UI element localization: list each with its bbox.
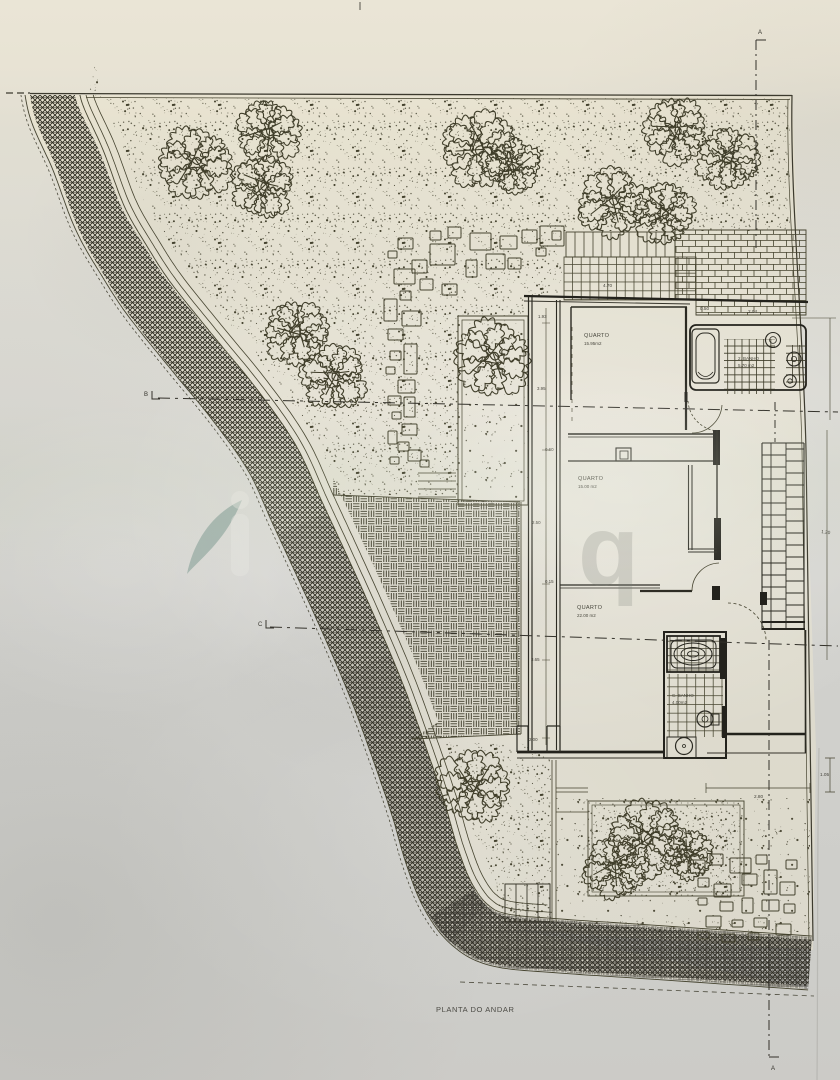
svg-text:2.04: 2.04 — [748, 309, 758, 314]
svg-text:2.00: 2.00 — [529, 737, 538, 742]
svg-text:0.50: 0.50 — [700, 306, 710, 311]
svg-text:1.93: 1.93 — [538, 314, 547, 319]
svg-text:PLANTA DO ANDAR: PLANTA DO ANDAR — [436, 1005, 514, 1014]
svg-text:A: A — [758, 30, 762, 36]
svg-text:QUARTO: QUARTO — [584, 333, 610, 339]
svg-text:2. BANHO: 2. BANHO — [738, 356, 760, 361]
svg-text:2.80: 2.80 — [754, 794, 764, 799]
svg-text:A: A — [771, 1066, 775, 1072]
svg-text:B: B — [144, 392, 148, 398]
svg-text:q: q — [578, 495, 639, 607]
svg-text:5.70 m2: 5.70 m2 — [738, 363, 755, 368]
svg-text:15.95m2: 15.95m2 — [584, 341, 602, 346]
svg-text:1.05: 1.05 — [820, 772, 830, 777]
svg-text:4.70: 4.70 — [603, 283, 613, 288]
svg-text:4.00m2: 4.00m2 — [672, 700, 688, 705]
svg-text:C. BANHO: C. BANHO — [672, 693, 694, 698]
